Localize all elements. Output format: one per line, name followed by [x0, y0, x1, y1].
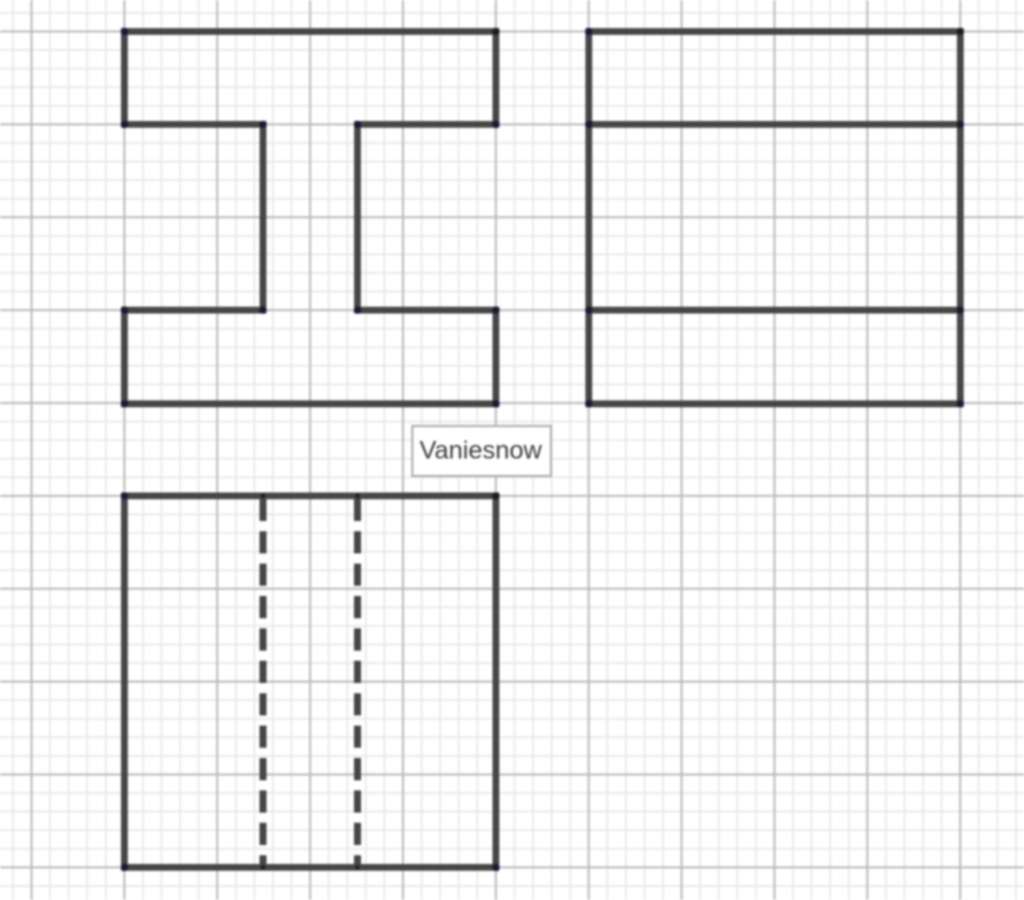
- svg-text:Vaniesnow: Vaniesnow: [420, 437, 543, 465]
